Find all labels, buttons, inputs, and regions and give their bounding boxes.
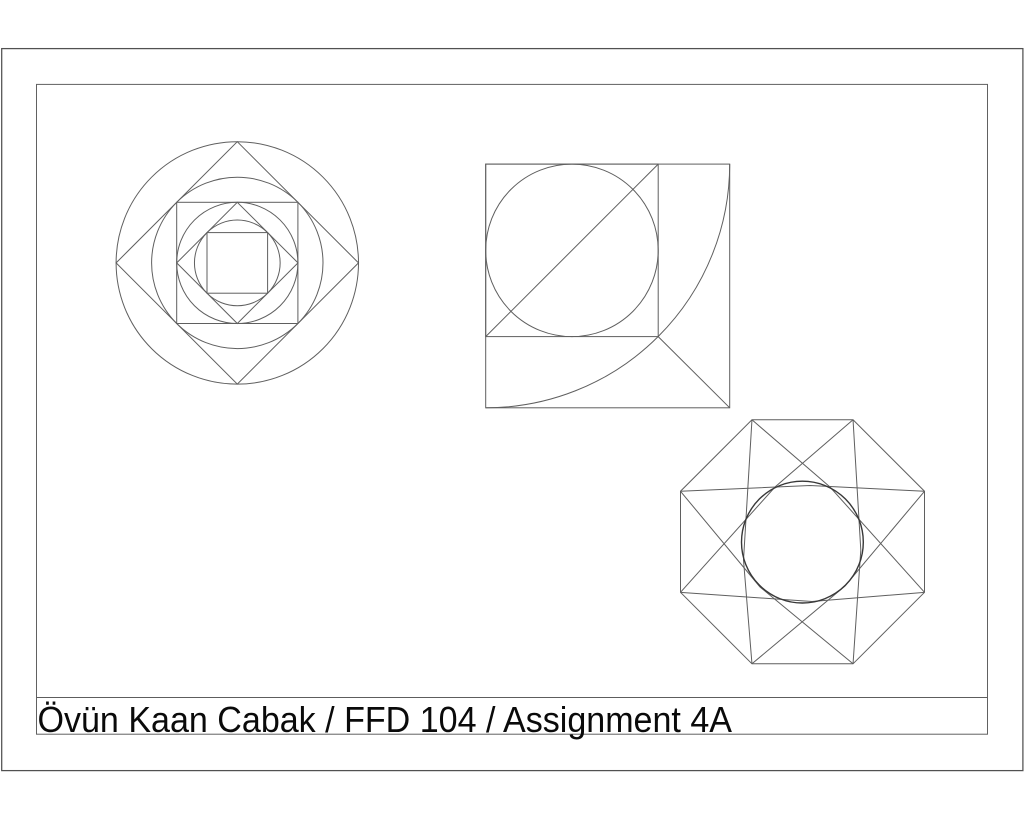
svg-text:Övün Kaan Cabak / FFD 104 / As: Övün Kaan Cabak / FFD 104 / Assignment 4… bbox=[38, 699, 733, 740]
